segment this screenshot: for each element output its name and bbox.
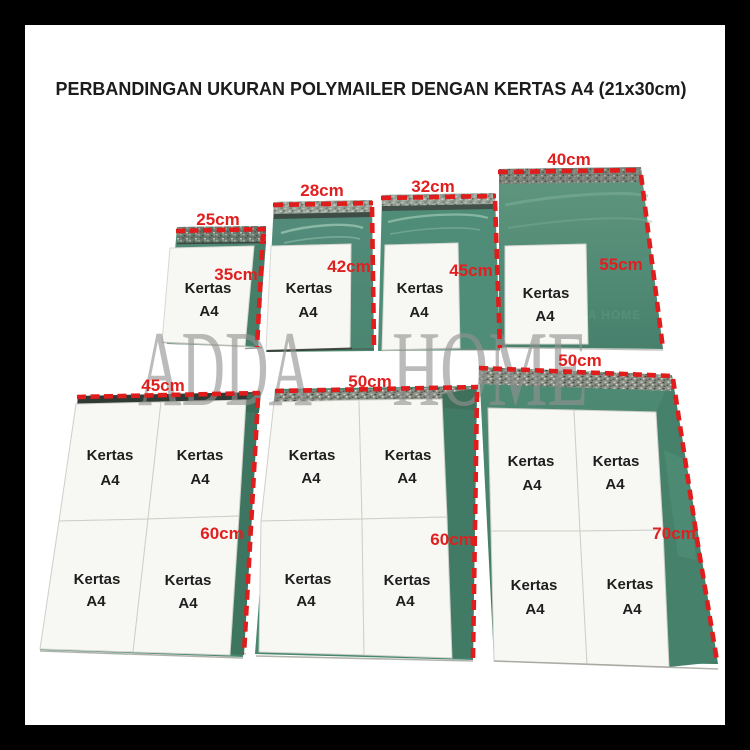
svg-text:Kertas: Kertas: [523, 285, 570, 302]
svg-text:70cm: 70cm: [652, 524, 695, 543]
svg-text:35cm: 35cm: [214, 265, 257, 284]
svg-text:Kertas: Kertas: [607, 576, 654, 593]
svg-text:A4: A4: [190, 471, 210, 488]
svg-text:Kertas: Kertas: [87, 447, 134, 464]
svg-text:28cm: 28cm: [300, 181, 343, 200]
svg-text:A4: A4: [395, 593, 415, 610]
svg-text:Kertas: Kertas: [385, 447, 432, 464]
svg-text:A4: A4: [525, 601, 545, 618]
svg-text:Kertas: Kertas: [511, 577, 558, 594]
svg-text:Kertas: Kertas: [397, 280, 444, 297]
svg-text:Kertas: Kertas: [177, 447, 224, 464]
svg-text:25cm: 25cm: [196, 210, 239, 229]
svg-text:Kertas: Kertas: [285, 571, 332, 588]
svg-text:42cm: 42cm: [327, 257, 370, 276]
svg-text:A4: A4: [100, 472, 120, 489]
svg-text:A4: A4: [86, 593, 106, 610]
svg-text:40cm: 40cm: [547, 150, 590, 169]
svg-text:55cm: 55cm: [599, 255, 642, 274]
svg-text:A4: A4: [522, 477, 542, 494]
svg-text:ADDA: ADDA: [138, 310, 312, 429]
svg-text:50cm: 50cm: [348, 372, 391, 391]
svg-text:A4: A4: [178, 595, 198, 612]
svg-text:50cm: 50cm: [558, 351, 601, 370]
svg-text:Kertas: Kertas: [508, 453, 555, 470]
svg-text:A4: A4: [605, 476, 625, 493]
svg-text:Kertas: Kertas: [289, 447, 336, 464]
svg-text:A4: A4: [622, 601, 642, 618]
svg-text:32cm: 32cm: [411, 177, 454, 196]
svg-text:PERBANDINGAN UKURAN POLYMAILER: PERBANDINGAN UKURAN POLYMAILER DENGAN KE…: [56, 79, 687, 99]
svg-text:A4: A4: [296, 593, 316, 610]
svg-text:Kertas: Kertas: [286, 280, 333, 297]
svg-text:60cm: 60cm: [200, 524, 243, 543]
svg-text:Kertas: Kertas: [165, 572, 212, 589]
svg-text:Kertas: Kertas: [384, 572, 431, 589]
svg-text:Kertas: Kertas: [593, 453, 640, 470]
svg-text:60cm: 60cm: [430, 530, 473, 549]
svg-text:A4: A4: [301, 470, 321, 487]
svg-text:Kertas: Kertas: [74, 571, 121, 588]
svg-text:45cm: 45cm: [449, 261, 492, 280]
svg-text:45cm: 45cm: [141, 376, 184, 395]
svg-text:A4: A4: [397, 470, 417, 487]
